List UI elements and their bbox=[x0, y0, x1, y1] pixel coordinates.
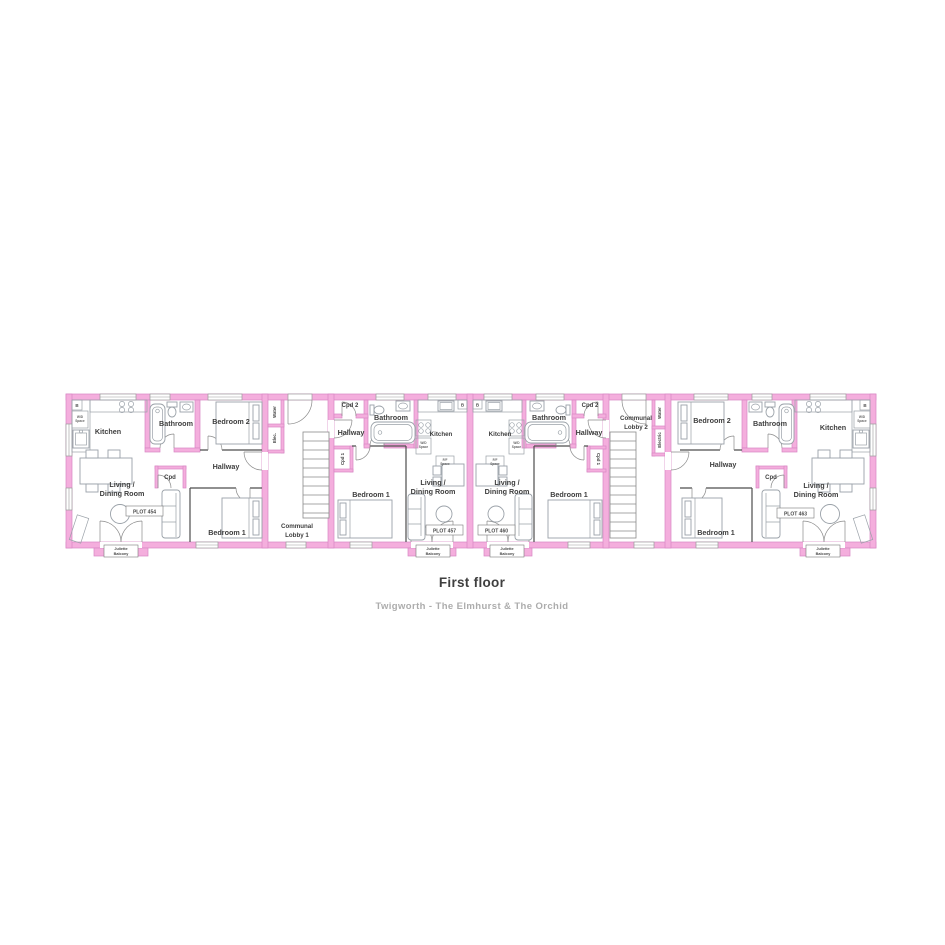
kitchen-sink-icon bbox=[438, 401, 454, 411]
lobby2-label-1: Communal bbox=[620, 415, 652, 422]
room-label-hallway: Hallway bbox=[338, 428, 365, 437]
water-label: Water bbox=[272, 406, 277, 418]
ff-label2: Space bbox=[490, 462, 500, 466]
floorplan-svg: Kitchen Bathroom Bedroom 2 Hallway Cpd L… bbox=[0, 0, 945, 945]
room-label-bathroom: Bathroom bbox=[753, 419, 787, 428]
page-title: First floor bbox=[439, 575, 506, 590]
room-label-bathroom: Bathroom bbox=[532, 413, 566, 422]
lobby1-label-1: Communal bbox=[281, 523, 313, 530]
sofa-icon bbox=[162, 490, 180, 538]
bathtub-icon bbox=[371, 422, 415, 443]
balcony-label-2: Balcony bbox=[816, 552, 832, 556]
kitchen-sink-icon bbox=[486, 401, 502, 411]
hob-icon bbox=[510, 423, 522, 434]
bed-icon bbox=[548, 500, 602, 538]
room-label-bedroom1: Bedroom 1 bbox=[550, 490, 588, 499]
plot-number: PLOT 457 bbox=[433, 529, 456, 535]
stairs-lobby-2 bbox=[610, 432, 636, 538]
room-label-kitchen: Kitchen bbox=[95, 427, 121, 436]
room-label-kitchen: Kitchen bbox=[489, 431, 512, 438]
basin-icon bbox=[530, 401, 544, 411]
balcony-label-1: Juliette bbox=[500, 547, 513, 551]
room-label-hallway: Hallway bbox=[213, 462, 240, 471]
room-label-bathroom: Bathroom bbox=[374, 413, 408, 422]
room-label-cpd: Cpd bbox=[765, 475, 777, 481]
room-label-bedroom2: Bedroom 2 bbox=[693, 416, 731, 425]
room-label-living-1: Living / bbox=[420, 478, 445, 487]
round-table-icon bbox=[821, 505, 840, 524]
wd-label2: Space bbox=[419, 445, 429, 449]
room-label-bedroom1: Bedroom 1 bbox=[697, 528, 735, 537]
hob-icon bbox=[119, 401, 133, 412]
electric-label: Electric bbox=[657, 432, 662, 448]
room-label-bedroom2: Bedroom 2 bbox=[212, 417, 250, 426]
balcony-label-2: Balcony bbox=[114, 552, 130, 556]
plot-number: PLOT 460 bbox=[485, 529, 508, 535]
room-label-bedroom1: Bedroom 1 bbox=[352, 490, 390, 499]
balcony-ledges bbox=[94, 548, 850, 556]
room-label-kitchen: Kitchen bbox=[820, 423, 846, 432]
bed-icon bbox=[338, 500, 392, 538]
ff-label2: Space bbox=[440, 462, 450, 466]
room-label-hallway: Hallway bbox=[576, 428, 603, 437]
basin-icon bbox=[749, 402, 762, 412]
room-label-living-1: Living / bbox=[109, 480, 134, 489]
stairs-lobby-1 bbox=[303, 432, 329, 518]
hob-icon bbox=[806, 401, 820, 412]
room-label-living-2: Dining Room bbox=[485, 487, 530, 496]
plot-number: PLOT 454 bbox=[133, 510, 156, 516]
hob-icon bbox=[419, 423, 431, 434]
water-label: Water bbox=[657, 407, 662, 419]
room-label-kitchen: Kitchen bbox=[430, 431, 453, 438]
exterior-walls bbox=[66, 394, 876, 548]
room-label-cpd2: Cpd 2 bbox=[342, 403, 359, 409]
lobby1-label-2: Lobby 1 bbox=[285, 532, 309, 539]
balcony-label-1: Juliette bbox=[114, 547, 127, 551]
page-subtitle: Twigworth - The Elmhurst & The Orchid bbox=[375, 601, 568, 612]
boiler-label: B bbox=[863, 403, 867, 408]
balcony-label-1: Juliette bbox=[426, 547, 439, 551]
balcony-label-2: Balcony bbox=[426, 552, 442, 556]
room-label-bedroom1: Bedroom 1 bbox=[208, 528, 246, 537]
room-label-cpd1: Cpd 1 bbox=[340, 452, 345, 465]
room-label-living-1: Living / bbox=[494, 478, 519, 487]
room-label-hallway: Hallway bbox=[710, 460, 737, 469]
round-table-icon bbox=[436, 506, 452, 522]
room-label-bathroom: Bathroom bbox=[159, 419, 193, 428]
room-label-living-1: Living / bbox=[803, 481, 828, 490]
basin-icon bbox=[396, 401, 410, 411]
room-label-cpd1: Cpd 1 bbox=[596, 453, 601, 466]
plot-number: PLOT 463 bbox=[784, 512, 807, 518]
toilet-icon bbox=[167, 402, 177, 417]
kitchen-counter bbox=[90, 400, 147, 412]
boiler-label: B bbox=[75, 403, 79, 408]
balcony-label-2: Balcony bbox=[500, 552, 516, 556]
lobby2-label-2: Lobby 2 bbox=[624, 424, 648, 431]
room-label-living-2: Dining Room bbox=[100, 489, 145, 498]
room-label-living-2: Dining Room bbox=[794, 490, 839, 499]
sofa-icon bbox=[515, 494, 532, 540]
toilet-icon bbox=[765, 402, 775, 417]
bathtub-icon bbox=[525, 422, 569, 443]
wd-label2: Space bbox=[512, 445, 522, 449]
kitchen-counter bbox=[795, 400, 852, 412]
balcony-label-1: Juliette bbox=[816, 547, 829, 551]
sofa-icon bbox=[408, 494, 425, 540]
boiler-label: B bbox=[461, 403, 465, 408]
wd-label2: Space bbox=[857, 419, 867, 423]
basin-icon bbox=[180, 402, 193, 412]
round-table-icon bbox=[488, 506, 504, 522]
room-label-living-2: Dining Room bbox=[411, 487, 456, 496]
boiler-label: B bbox=[476, 403, 480, 408]
elec-label: Elec. bbox=[272, 433, 277, 443]
wd-label2: Space bbox=[75, 419, 85, 423]
room-label-cpd: Cpd bbox=[164, 475, 176, 481]
room-label-cpd2: Cpd 2 bbox=[582, 403, 599, 409]
